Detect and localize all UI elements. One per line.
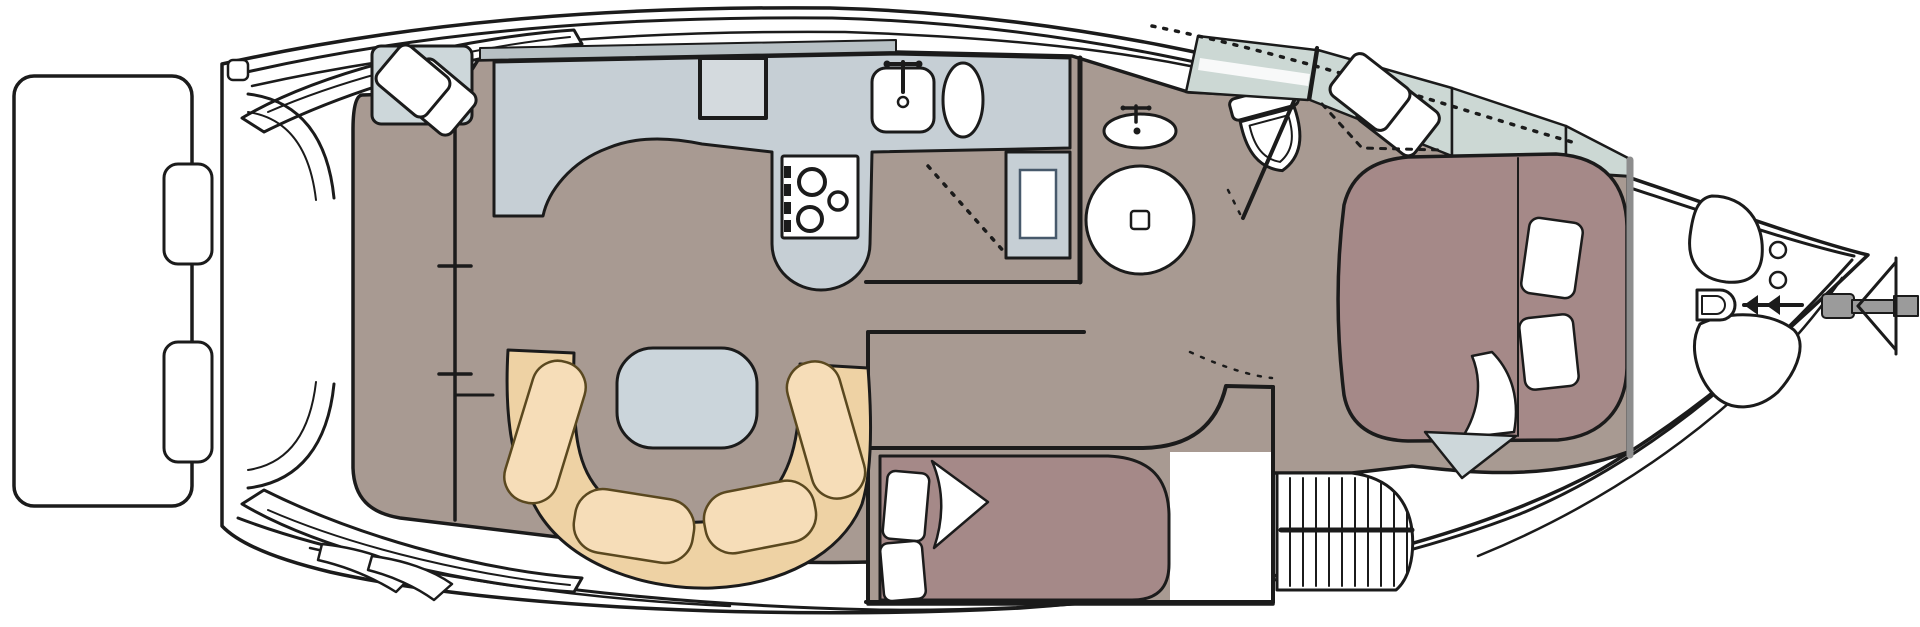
stove-group <box>782 156 858 238</box>
companionway-steps <box>1277 473 1413 590</box>
pillow <box>1520 217 1584 300</box>
galley-cabinet-door <box>1020 170 1056 238</box>
pillow <box>880 540 927 601</box>
windlass-gypsy <box>1702 296 1725 314</box>
transom-step-upper <box>164 164 212 264</box>
faucet-knob-icon <box>916 61 923 68</box>
stove-knob-icon <box>784 220 791 232</box>
deck-fitting-icon <box>1770 272 1786 288</box>
galley-sink-group <box>872 61 934 133</box>
shower-group <box>1086 166 1194 274</box>
yacht-floor-plan-canvas <box>0 0 1920 627</box>
pillow <box>1518 313 1579 390</box>
dinette-table <box>617 348 757 448</box>
faucet-knob-icon <box>1147 106 1152 111</box>
deck-fitting-icon <box>1770 242 1786 258</box>
stove-knob-icon <box>784 166 791 178</box>
deck-hatch-aft <box>1690 196 1763 282</box>
yacht-floor-plan <box>0 0 1920 627</box>
shower-pan <box>1086 166 1194 274</box>
anchor-stock <box>1894 296 1918 316</box>
drain-icon <box>1134 128 1141 135</box>
mid-cabin-floor-white <box>1170 452 1273 602</box>
galley-basin <box>943 63 983 137</box>
faucet-knob-icon <box>1121 106 1126 111</box>
pillow <box>882 470 930 541</box>
galley-locker <box>700 58 766 118</box>
helm-group <box>372 41 480 138</box>
stove-knob-icon <box>784 202 791 214</box>
faucet-knob-icon <box>884 61 891 68</box>
cockpit-fitting <box>228 60 248 80</box>
transom-step-lower <box>164 342 212 462</box>
bow-roller <box>1822 294 1854 318</box>
stove-knob-icon <box>784 184 791 196</box>
deck-hatch-forward <box>1695 315 1801 407</box>
windlass-group <box>1697 290 1735 320</box>
